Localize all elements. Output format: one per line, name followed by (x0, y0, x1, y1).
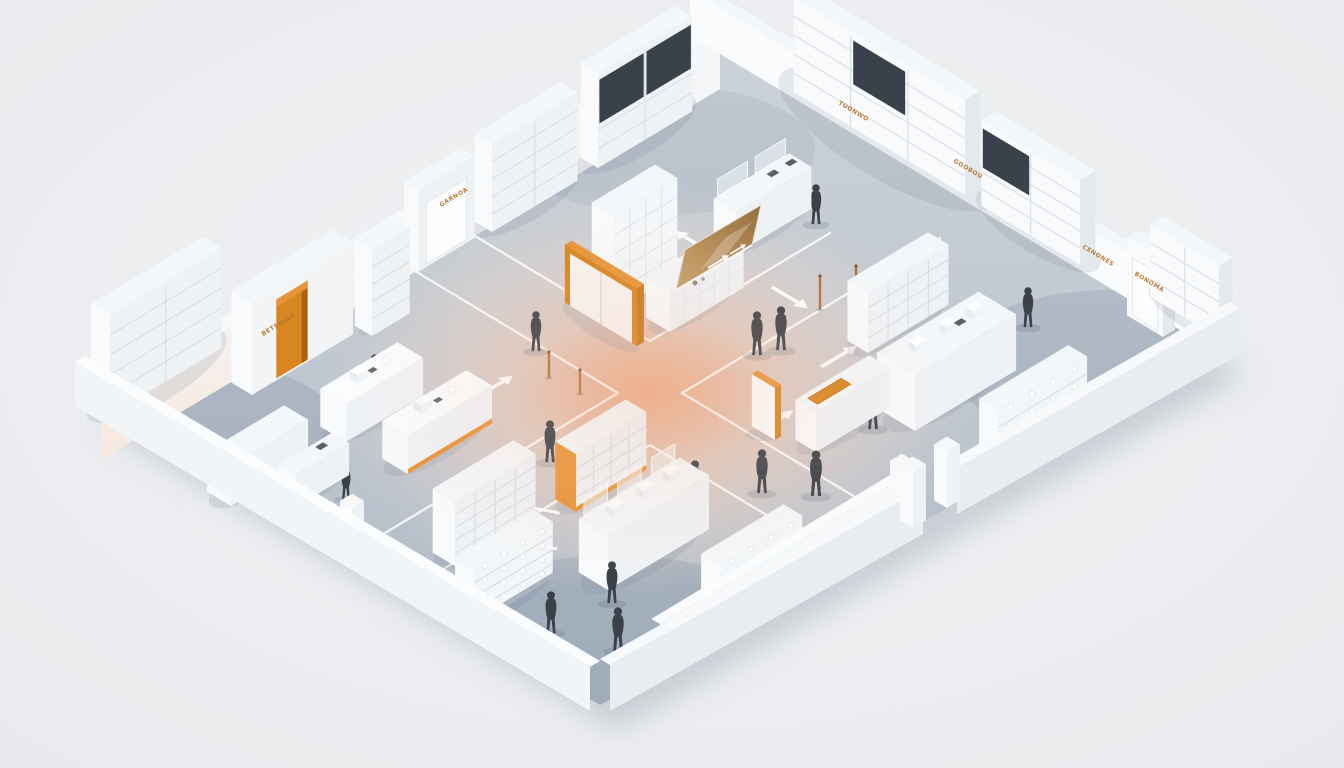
fixture-s-glass-1 (501, 566, 507, 572)
fixture-s-glass-1 (520, 582, 526, 588)
store-floorplan-render: BETSHINO GARNOA TUONWO GOOBOU CENONES BO… (0, 0, 1344, 768)
fixture-w-wall-shelf-c (475, 134, 492, 232)
fixture-e-glass-shelf (1008, 405, 1014, 411)
fixture-s-glass-1 (539, 571, 545, 577)
fixture-w-wardrobe (231, 291, 252, 395)
fixture-s-glass-1 (501, 580, 507, 586)
central-glow-veil (348, 215, 948, 575)
fixture-s-glass-1 (482, 563, 488, 569)
person-figure (803, 221, 830, 229)
doorway-pillar (947, 444, 960, 508)
fixture-s-glass-1 (501, 594, 507, 600)
person-figure (598, 600, 626, 609)
warm-glow-overlay (348, 215, 948, 575)
fixture-e-glass-shelf (1072, 366, 1078, 372)
person-figure (1015, 324, 1042, 332)
doorway-pillar (934, 444, 947, 508)
fixture-e-glass-shelf (1072, 383, 1078, 389)
fixture-e-glass-shelf (1029, 392, 1035, 398)
fixture-w-wall-shelf-far (581, 63, 598, 168)
fixture-s-glass-1 (520, 568, 526, 574)
fixture-s-glass-1 (482, 577, 488, 583)
fixture-w-wardrobe (302, 281, 308, 364)
fixture-e-glass-shelf (1051, 379, 1057, 385)
fixture-w-wall-shelf-b (355, 240, 372, 336)
